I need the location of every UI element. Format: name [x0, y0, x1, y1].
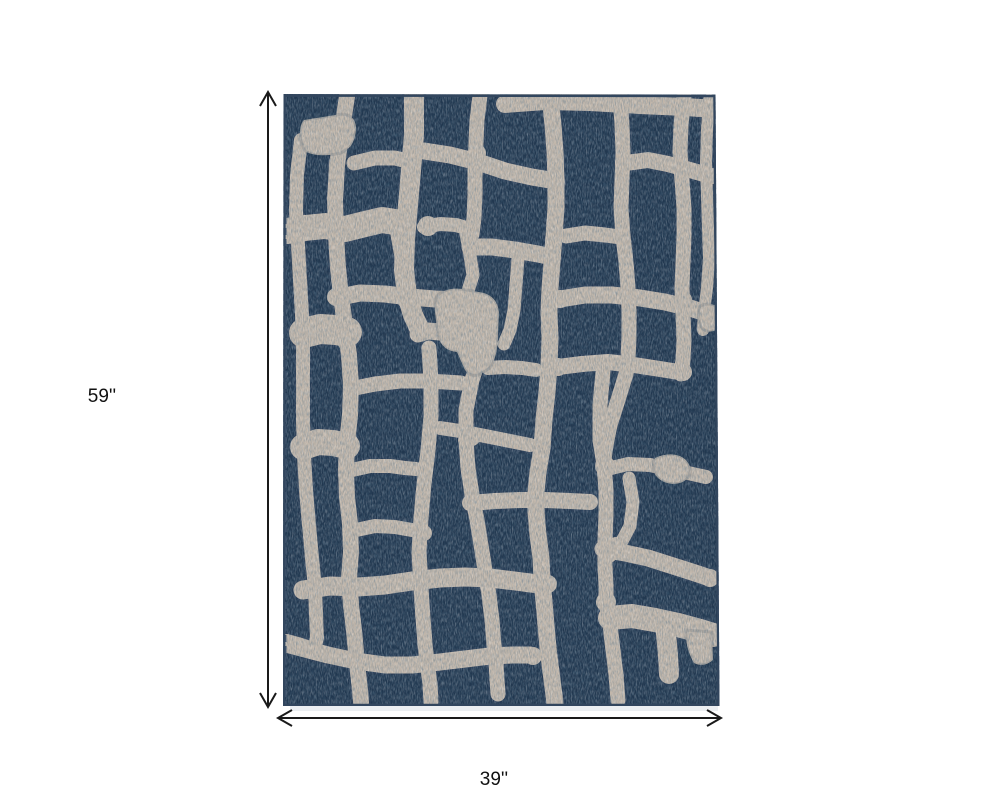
svg-text:59'': 59'' [88, 386, 116, 407]
svg-text:39'': 39'' [480, 769, 508, 790]
